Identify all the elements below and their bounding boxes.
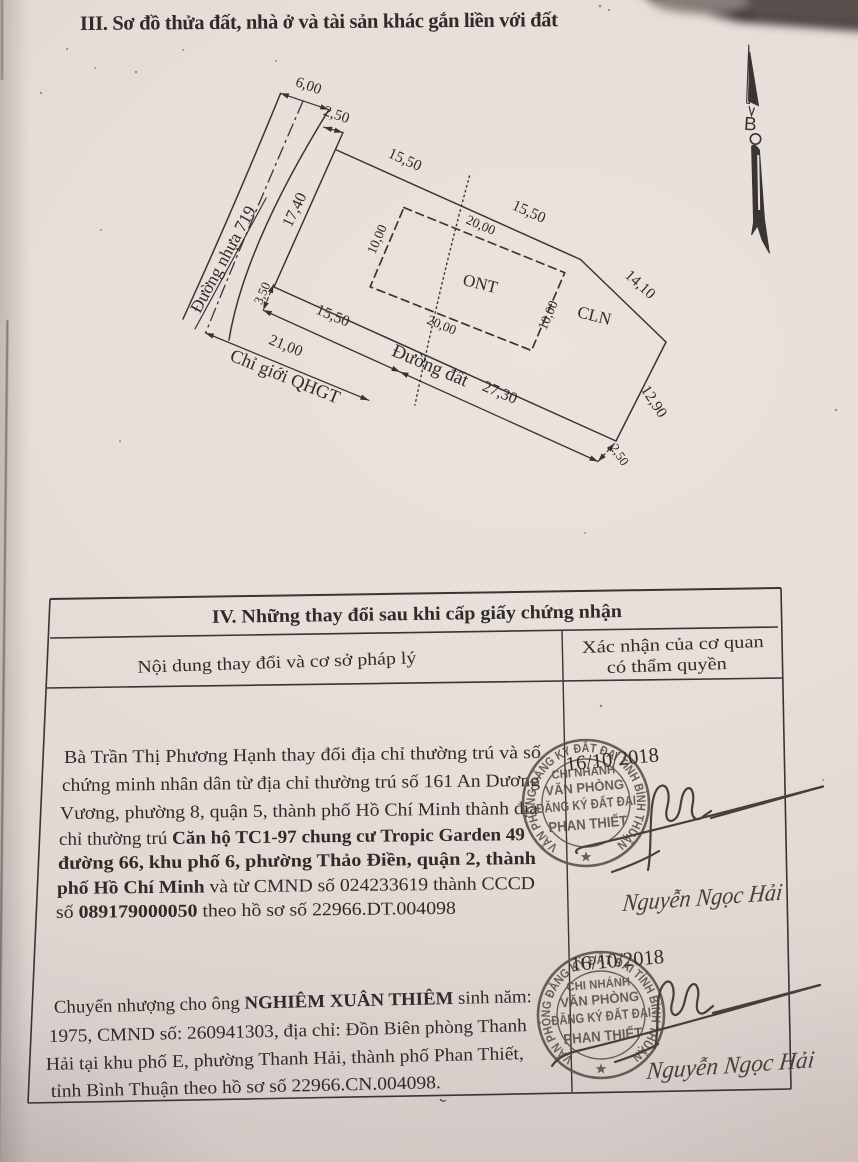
svg-text:2,50: 2,50 bbox=[607, 441, 632, 468]
svg-text:ONT: ONT bbox=[461, 270, 500, 297]
svg-text:có thẩm quyền: có thẩm quyền bbox=[607, 653, 728, 677]
svg-text:15,50: 15,50 bbox=[509, 197, 548, 227]
svg-text:Xác nhận của cơ quan: Xác nhận của cơ quan bbox=[582, 631, 765, 657]
svg-text:15,50: 15,50 bbox=[313, 301, 352, 330]
svg-text:III. Sơ đồ thửa đất, nhà ở và: III. Sơ đồ thửa đất, nhà ở và tài sản kh… bbox=[80, 9, 558, 35]
svg-text:đường 66, khu phố 6, phường Th: đường 66, khu phố 6, phường Thảo Điền, q… bbox=[58, 848, 536, 873]
svg-text:Nguyễn Ngọc Hải: Nguyễn Ngọc Hải bbox=[620, 879, 783, 917]
svg-text:Bà Trần Thị Phương Hạnh thay đ: Bà Trần Thị Phương Hạnh thay đổi địa chỉ… bbox=[64, 742, 541, 767]
svg-text:3,50: 3,50 bbox=[250, 280, 273, 307]
svg-text:chỉ thường trú Căn hộ TC1-97 c: chỉ thường trú Căn hộ TC1-97 chung cư Tr… bbox=[59, 824, 525, 849]
svg-text:14,10: 14,10 bbox=[621, 267, 658, 303]
svg-text:16/10/2018: 16/10/2018 bbox=[570, 946, 665, 976]
svg-text:Đường nhựa 719: Đường nhựa 719 bbox=[186, 202, 260, 316]
svg-text:10,00: 10,00 bbox=[535, 298, 561, 332]
svg-text:2,50: 2,50 bbox=[321, 103, 351, 127]
svg-text:Chỉ giới QHGT: Chỉ giới QHGT bbox=[227, 346, 343, 408]
svg-text:1975, CMND số: 260941303, địa: 1975, CMND số: 260941303, địa chỉ: Đồn B… bbox=[49, 1015, 527, 1046]
svg-text:12,90: 12,90 bbox=[637, 382, 670, 421]
svg-text:Vương, phường 8, quận 5, thành: Vương, phường 8, quận 5, thành phố Hồ Ch… bbox=[60, 798, 538, 823]
svg-text:chứng minh nhân dân từ địa chỉ: chứng minh nhân dân từ địa chỉ thường tr… bbox=[62, 770, 540, 795]
svg-text:PHAN THIẾT: PHAN THIẾT bbox=[548, 812, 628, 836]
svg-text:21,00: 21,00 bbox=[266, 331, 305, 360]
svg-text:CLN: CLN bbox=[576, 302, 614, 329]
svg-text:phố Hồ Chí Minh và từ CMND số: phố Hồ Chí Minh và từ CMND số 024233619 … bbox=[57, 873, 535, 898]
svg-text:17,40: 17,40 bbox=[279, 190, 310, 230]
svg-text:20,00: 20,00 bbox=[425, 312, 459, 338]
svg-text:6,00: 6,00 bbox=[293, 74, 323, 98]
svg-text:15,50: 15,50 bbox=[385, 145, 424, 175]
svg-text:Chuyển nhượng cho ông NGHIÊM X: Chuyển nhượng cho ông NGHIÊM XUÂN THIÊM … bbox=[54, 985, 532, 1017]
svg-text:27,30: 27,30 bbox=[480, 378, 520, 408]
svg-text:Nội dung thay đổi và cơ sở phá: Nội dung thay đổi và cơ sở pháp lý bbox=[137, 647, 417, 676]
svg-text:Hải tại khu phố E, phường Than: Hải tại khu phố E, phường Thanh Hải, thà… bbox=[46, 1043, 524, 1074]
svg-text:B: B bbox=[743, 114, 757, 136]
svg-text:IV. Những thay đổi sau khi cấp: IV. Những thay đổi sau khi cấp giấy chứn… bbox=[212, 601, 623, 628]
svg-text:Đường đất: Đường đất bbox=[389, 340, 472, 391]
svg-text:số 089179000050 theo hồ sơ số: số 089179000050 theo hồ sơ số 22966.DT.0… bbox=[56, 898, 456, 922]
